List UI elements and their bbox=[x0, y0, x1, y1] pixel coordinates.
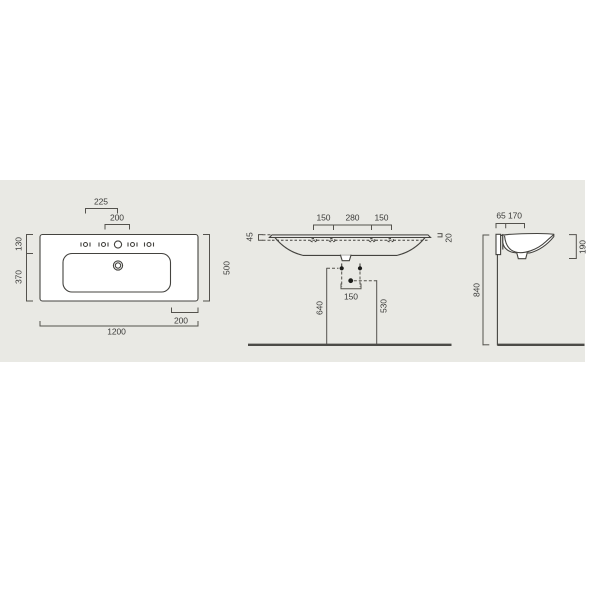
side-basin-profile bbox=[501, 234, 554, 259]
side-bowl-depth-dimension bbox=[570, 235, 577, 259]
technical-drawing-sheet: 225 200 130 370 500 200 1200 150 280 150… bbox=[0, 0, 600, 600]
side-height-dimension bbox=[483, 235, 489, 345]
plan-dim-left-bottom: 370 bbox=[14, 270, 23, 284]
front-dim-span-center: 280 bbox=[346, 213, 360, 222]
front-dim-fixing-height: 640 bbox=[315, 301, 324, 315]
side-dim-bowl-depth: 190 bbox=[579, 240, 588, 254]
plan-dim-depth: 500 bbox=[223, 261, 232, 275]
front-drain-hole bbox=[348, 278, 353, 283]
plan-dim-width: 1200 bbox=[107, 327, 126, 336]
front-edge-lip-dimension bbox=[438, 234, 442, 237]
plan-dim-left-top: 130 bbox=[14, 237, 23, 251]
side-dim-rim-depth: 170 bbox=[508, 211, 522, 220]
side-wall-bracket bbox=[496, 234, 501, 254]
plan-dim-hole-offset: 225 bbox=[94, 198, 108, 207]
front-dim-span-left: 150 bbox=[317, 213, 331, 222]
front-dim-span-right: 150 bbox=[375, 213, 389, 222]
front-dim-fixing-pitch: 150 bbox=[344, 292, 358, 301]
side-view bbox=[483, 224, 585, 345]
front-view bbox=[248, 225, 452, 345]
front-top-dimension bbox=[314, 225, 392, 230]
plan-view bbox=[27, 209, 210, 327]
front-rim-outline bbox=[270, 235, 431, 238]
plan-dim-right-inset: 200 bbox=[174, 316, 188, 325]
side-dim-mount-height: 840 bbox=[472, 283, 481, 297]
front-dim-drain-height: 530 bbox=[379, 299, 388, 313]
plan-bowl-outline bbox=[63, 254, 171, 293]
side-dim-bracket-depth: 65 bbox=[496, 211, 505, 220]
drawing-linework bbox=[0, 0, 600, 600]
front-fixing-holes bbox=[327, 264, 377, 289]
front-drain-stub bbox=[341, 255, 352, 261]
front-dim-rim-thickness: 45 bbox=[246, 233, 255, 242]
side-top-dimension bbox=[496, 224, 525, 228]
plan-dim-hole-pitch: 200 bbox=[110, 214, 124, 223]
front-fixing-pitch-dimension bbox=[341, 284, 361, 289]
front-dim-edge-lip: 20 bbox=[445, 233, 454, 242]
